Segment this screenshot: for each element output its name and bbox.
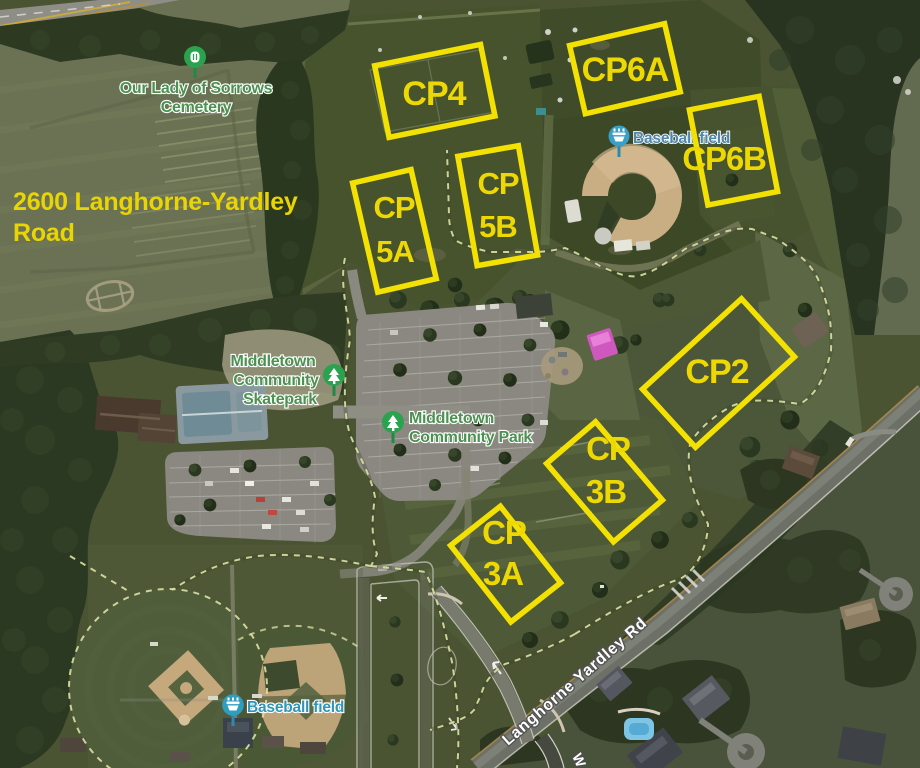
- svg-text:CP6A: CP6A: [582, 51, 669, 89]
- svg-text:3A: 3A: [483, 555, 523, 592]
- svg-text:Baseball field: Baseball field: [247, 699, 344, 716]
- svg-text:Road: Road: [13, 219, 75, 247]
- svg-text:Community Park: Community Park: [409, 429, 532, 446]
- svg-text:Middletown: Middletown: [231, 353, 316, 370]
- svg-text:Middletown: Middletown: [409, 410, 494, 427]
- svg-text:5B: 5B: [479, 209, 517, 244]
- svg-text:CP4: CP4: [402, 75, 466, 113]
- svg-text:Skatepark: Skatepark: [243, 391, 317, 408]
- svg-text:Cemetery: Cemetery: [161, 99, 232, 116]
- svg-text:3B: 3B: [586, 473, 626, 510]
- svg-text:CP: CP: [482, 514, 526, 551]
- svg-text:5A: 5A: [376, 234, 414, 269]
- svg-text:CP: CP: [477, 166, 518, 201]
- svg-text:CP: CP: [586, 430, 630, 467]
- svg-text:CP6B: CP6B: [682, 140, 766, 177]
- svg-text:CP: CP: [373, 190, 414, 225]
- svg-text:Our Lady of Sorrows: Our Lady of Sorrows: [120, 80, 273, 97]
- svg-text:Community: Community: [233, 372, 319, 389]
- svg-text:CP2: CP2: [685, 353, 748, 391]
- svg-text:2600 Langhorne-Yardley: 2600 Langhorne-Yardley: [13, 188, 298, 216]
